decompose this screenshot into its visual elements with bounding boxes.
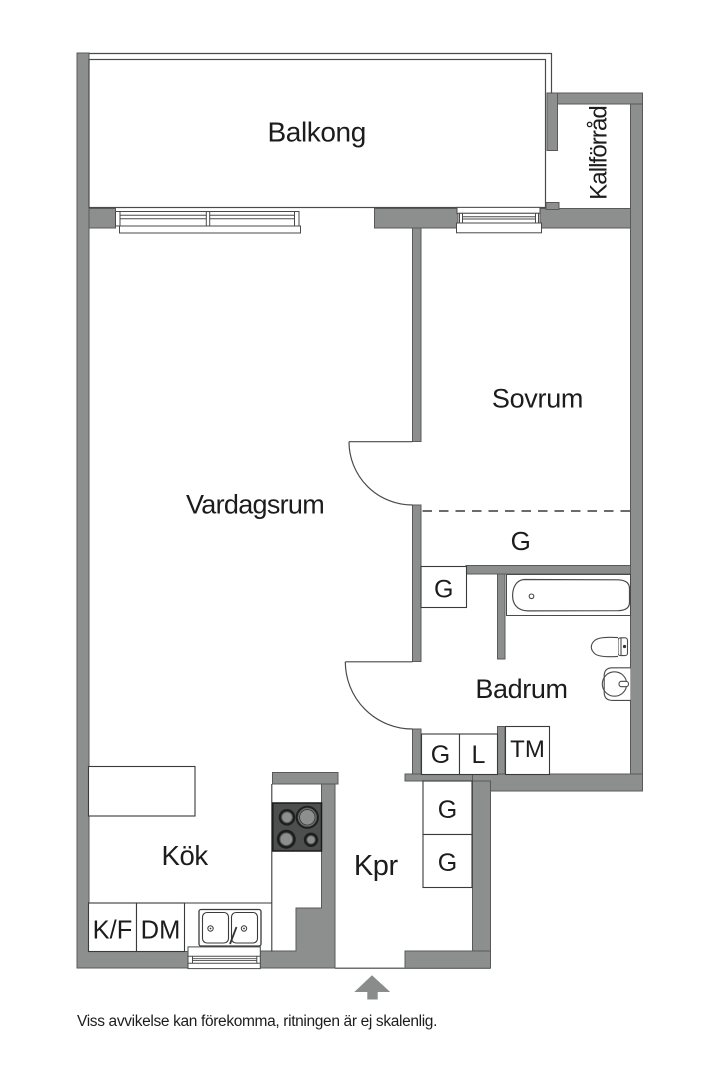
svg-text:G: G (431, 741, 450, 769)
svg-text:K/F: K/F (93, 917, 133, 945)
svg-text:Kök: Kök (162, 840, 209, 871)
svg-text:L: L (472, 741, 486, 769)
svg-text:DM: DM (141, 917, 181, 945)
svg-text:G: G (438, 796, 457, 824)
svg-text:G: G (434, 576, 453, 604)
svg-text:Badrum: Badrum (475, 674, 567, 704)
svg-text:TM: TM (510, 736, 545, 763)
svg-text:Kallförråd: Kallförråd (586, 106, 613, 200)
svg-text:Balkong: Balkong (268, 117, 366, 148)
svg-text:Vardagsrum: Vardagsrum (186, 490, 324, 520)
svg-text:Kpr: Kpr (354, 850, 399, 882)
svg-text:Sovrum: Sovrum (492, 384, 583, 414)
svg-text:G: G (511, 526, 531, 556)
svg-text:G: G (438, 849, 457, 877)
svg-text:Viss avvikelse kan förekomma,: Viss avvikelse kan förekomma, ritningen … (77, 1013, 437, 1030)
